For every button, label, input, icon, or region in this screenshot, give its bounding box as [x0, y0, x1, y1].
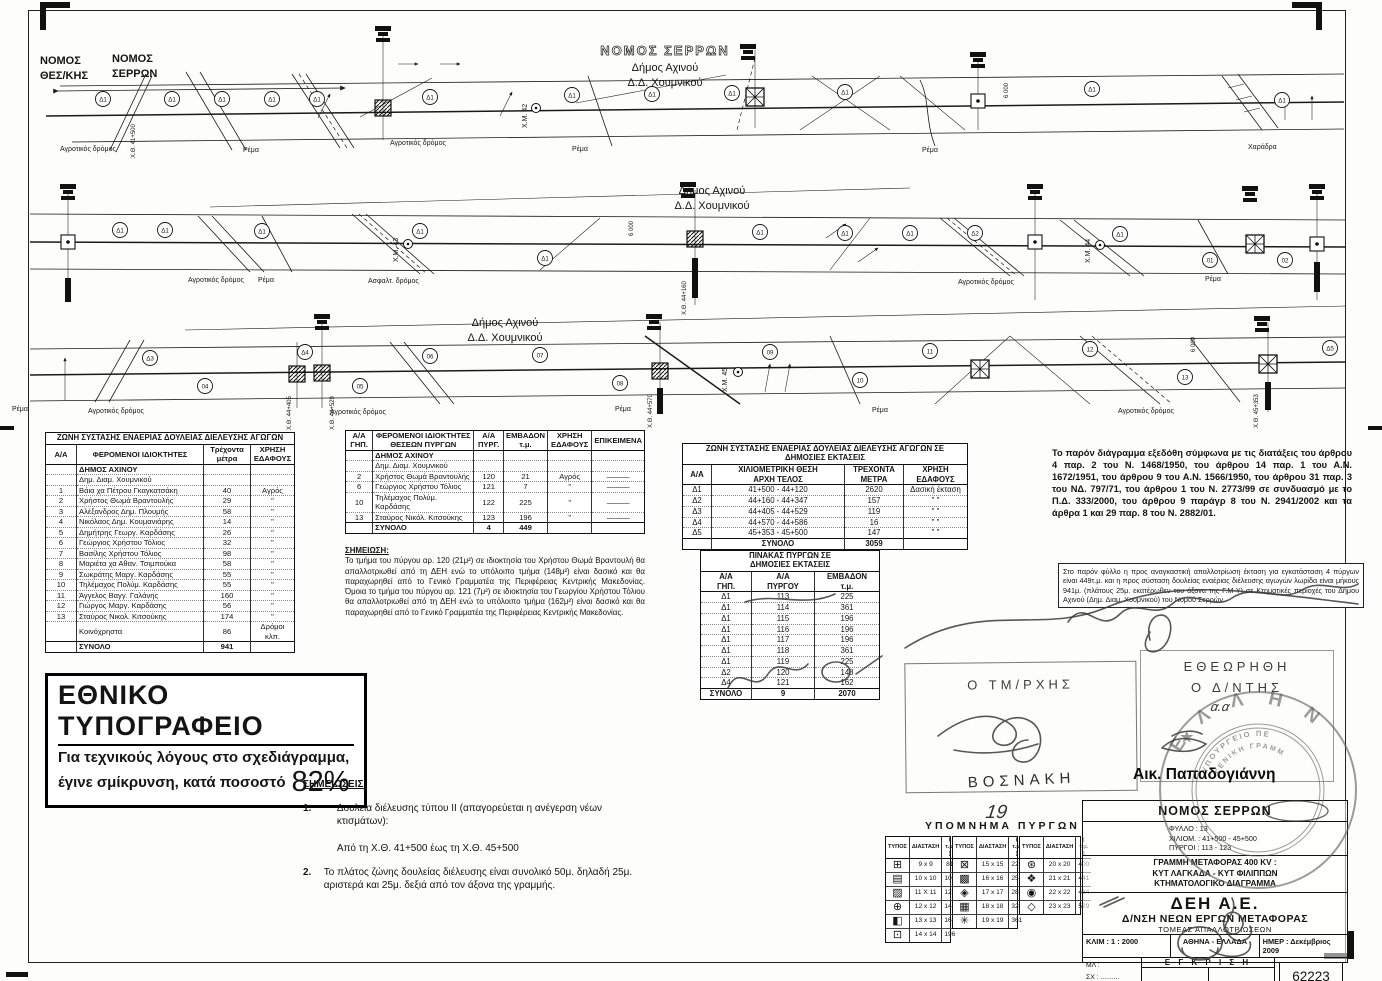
ground-label: Αγροτικός δρόμος: [1118, 407, 1174, 415]
line-title: ΓΡΑΜΜΗ ΜΕΤΑΦΟΡΑΣ 400 KV :: [1083, 858, 1347, 869]
table-cell: Δ1: [683, 485, 712, 496]
parcel-circle: Δ1: [1275, 93, 1290, 108]
table-cell: ": [251, 517, 295, 527]
table-cell: 225: [815, 592, 880, 603]
table-cell: 3059: [845, 539, 904, 549]
municipality-label: Δήμος Αχινού: [472, 317, 539, 329]
svg-text:Δ1: Δ1: [268, 96, 276, 103]
legend-group-2: ΤΥΠΟΣ ΔΙΑΣΤΑΣΗ ( τ.μ. ) ⊠15 x 15225▩16 x…: [952, 836, 1018, 929]
svg-text:Δ1: Δ1: [116, 227, 124, 234]
svg-text:Δ1: Δ1: [426, 94, 434, 101]
section-chief-name: ΒΟΣΝΑΚΗ: [906, 767, 1137, 794]
prefecture-title: ΝΟΜΟΣ ΣΕΡΡΩΝ: [1083, 801, 1347, 822]
table-cell: ———: [592, 482, 644, 492]
expropriation-summary-box: Στο παρόν φύλλο η προς αναγκαστική απαλλ…: [1058, 563, 1364, 608]
span-label: 6 000: [1004, 82, 1010, 98]
table-row: ◈17 x 17289: [953, 886, 1024, 900]
table-cell: ": [251, 601, 295, 611]
column-header: ΤΥΠΟΣ: [953, 837, 976, 858]
table-row: 13Σταύρος Νικολ. Κιτσούκης174": [46, 611, 294, 621]
table-cell: 196: [942, 928, 958, 942]
table-cell: [592, 523, 644, 533]
table-cell: 4: [46, 517, 77, 527]
parcel-circle: Δ5: [1323, 341, 1338, 356]
note-number: 2.: [303, 866, 324, 893]
chainage-label: Χ.Θ. 44+160: [682, 280, 688, 315]
ground-label: Αγροτικός δρόμος: [958, 278, 1014, 286]
table-cell: ΣΥΝΟΛΟ: [712, 539, 845, 549]
table-row: Δ244+160 - 44+347157" ": [683, 496, 967, 507]
tower-symbol: [314, 365, 330, 381]
column-header: ΧΡΗΣΗ ΕΔΑΦΟΥΣ: [251, 445, 295, 464]
parcel-circle: Δ3: [143, 351, 158, 366]
parcel-circle: 01: [1203, 253, 1218, 268]
parcel-circle: 09: [763, 345, 778, 360]
parcel-circle: Δ1: [413, 224, 428, 239]
table-cell: ———: [592, 512, 644, 522]
svg-text:Δ1: Δ1: [218, 96, 226, 103]
table-title: ΖΩΝΗ ΣΥΣΤΑΣΗΣ ΕΝΑΕΡΙΑΣ ΔΟΥΛΕΙΑΣ ΔΙΕΛΕΥΣΗ…: [683, 444, 967, 465]
table-cell: 361: [815, 603, 880, 614]
table-cell: 2: [346, 471, 373, 481]
table-cell: 120: [474, 471, 504, 481]
table-cell: [46, 475, 77, 485]
ml-field: ΜΛ :: [1086, 960, 1138, 972]
column-header: ΦΕΡΟΜΕΝΟΙ ΙΔΙΟΚΤΗΤΕΣ: [77, 445, 204, 464]
ground-label: Ρέμα: [872, 406, 888, 414]
table-row: Δημ. Διαμ. Χουμνικού: [46, 475, 294, 485]
column-header: ΤΥΠΟΣ: [886, 837, 909, 858]
table-cell: [504, 450, 548, 460]
table-cell: ΣΥΝΟΛΟ: [701, 688, 752, 698]
note-text: Από τη Χ.Θ. 41+500 έως τη Χ.Θ. 45+500: [337, 843, 519, 854]
table-row: ▨11 X 11121: [886, 886, 957, 900]
table-cell: 22 x 22: [1043, 886, 1075, 900]
table-cell: 15 x 15: [976, 858, 1008, 872]
table-cell: 56: [204, 601, 251, 611]
table-cell: ": [251, 506, 295, 516]
table-cell: ⊕: [886, 900, 909, 914]
parcel-circle: 10: [853, 373, 868, 388]
table-title: ΠΙΝΑΚΑΣ ΠΥΡΓΩΝ ΣΕ ΔΗΜΟΣΙΕΣ ΕΚΤΑΣΕΙΣ: [701, 551, 879, 572]
note-text: Δουλεία διέλευσης τύπου ΙΙ (απαγορεύεται…: [337, 803, 602, 828]
table-row: 12Γιώργος Μαργ. Καρδάσης56": [46, 601, 294, 611]
tower-range: ΠΥΡΓΟΙ : 113 - 123: [1169, 843, 1347, 853]
table-cell: 157: [845, 496, 904, 507]
parcel-circle: Δ1: [645, 87, 660, 102]
table-cell: 13: [346, 512, 373, 522]
span-label: 6 000: [629, 220, 635, 236]
table-cell: ": [251, 538, 295, 548]
table-cell: [251, 642, 295, 652]
table-row: ◉22 x 22484: [1020, 886, 1091, 900]
table-cell: Δημ. Διαμ. Χουμνικού: [77, 475, 204, 485]
table-cell: 58: [204, 559, 251, 569]
parcel-circle: Δ1: [215, 92, 230, 107]
table-cell: Δ1: [701, 635, 752, 646]
svg-text:Δ1: Δ1: [906, 230, 914, 237]
ground-label: Ρέμα: [1205, 275, 1221, 283]
table-cell: ": [251, 580, 295, 590]
meta-row: ΚΛΙΜ : 1 : 2000 ΑΘΗΝΑ - ΕΛΛΑΔΑ ΗΜΕΡ : Δε…: [1083, 935, 1347, 958]
table-cell: Δ1: [701, 656, 752, 667]
table-row: Δ141+500 - 44+1202620Δασική έκταση: [683, 485, 967, 496]
km-marker: [734, 368, 743, 377]
column-header: Α/Α ΠΥΡΓ.: [474, 431, 504, 450]
station-mark: [375, 26, 391, 42]
table-cell: Δ1: [701, 613, 752, 624]
table-row: Κοινόχρηστα86Δρόμοι κλπ.: [46, 622, 294, 642]
table-cell: " ": [904, 506, 968, 517]
table-cell: 174: [204, 611, 251, 621]
table-cell: 121: [474, 482, 504, 492]
svg-text:Δ1: Δ1: [168, 96, 176, 103]
ground-label: Αγροτικός δρόμος: [330, 408, 386, 416]
table-cell: 55: [204, 580, 251, 590]
parcel-circle: Δ4: [298, 345, 313, 360]
table-row: ◇23 x 23529: [1020, 900, 1091, 914]
table-row: 1Βάια χα Πέτρου Γκαγκατσάκη40Αγρός: [46, 485, 294, 495]
table-cell: Σωκράτης Μαργ. Καρδάσης: [77, 569, 204, 579]
table-row: ΔΗΜΟΣ ΑΧΙΝΟΥ: [46, 464, 294, 474]
parcel-circle: Δ1: [753, 225, 768, 240]
parcel-circle: Δ1: [423, 90, 438, 105]
table-cell: ◇: [1020, 900, 1043, 914]
table-cell: [548, 450, 592, 460]
table-cell: ⊛: [1020, 858, 1043, 872]
km-label: Χ.Μ. 45: [722, 368, 729, 392]
svg-text:06: 06: [427, 353, 434, 360]
table-row: Δ545+353 - 45+500147" ": [683, 528, 967, 539]
parcel-circle: Δ1: [565, 88, 580, 103]
table-cell: 196: [815, 635, 880, 646]
table-row: ✳19 x 19361: [953, 914, 1024, 928]
column-header: ΧΙΛΙΟΜΕΤΡΙΚΗ ΘΕΣΗ ΑΡΧΗ ΤΕΛΟΣ: [712, 465, 845, 485]
table-cell: 114: [752, 603, 815, 614]
table-cell: ✳: [953, 914, 976, 928]
table-row: Δ1113225: [701, 592, 879, 603]
chainage-label: Χ.Θ. 45+353: [1254, 393, 1260, 428]
nomos-right-label: ΣΕΡΡΩΝ: [112, 68, 157, 80]
table-row: ΣΥΝΟΛΟ4449: [346, 523, 644, 533]
table-cell: ⊠: [953, 858, 976, 872]
svg-text:Δ1: Δ1: [728, 90, 736, 97]
table-cell: ΣΥΝΟΛΟ: [373, 523, 474, 533]
table-cell: Δ1: [701, 646, 752, 657]
company-name: ΔΕΗ Α.Ε.: [1083, 893, 1347, 913]
tower-symbol: [652, 363, 668, 379]
parcel-circle: Δ1: [113, 223, 128, 238]
table-cell: Αγρός: [548, 471, 592, 481]
column-header: ΤΥΠΟΣ: [1020, 837, 1043, 858]
table-cell: [548, 461, 592, 471]
table-row: 2Χρήστος Θωμά Βραντουλής12021Αγρός———: [346, 471, 644, 481]
station-mark: [1309, 184, 1325, 200]
svg-text:Δ1: Δ1: [161, 227, 169, 234]
ground-label: Ρέμα: [12, 405, 28, 413]
table-cell: ": [251, 590, 295, 600]
table-header-row: ΤΥΠΟΣ ΔΙΑΣΤΑΣΗ ( τ.μ. ): [1020, 837, 1091, 858]
table-cell: ΔΗΜΟΣ ΑΧΙΝΟΥ: [373, 450, 474, 460]
svg-text:Δ1: Δ1: [1116, 231, 1124, 238]
table-cell: [346, 450, 373, 460]
table-cell: Δ1: [701, 592, 752, 603]
table-cell: 19 x 19: [976, 914, 1008, 928]
table-row: ⊕12 x 12144: [886, 900, 957, 914]
table-cell: Δ4: [683, 517, 712, 528]
svg-text:Δ1: Δ1: [756, 229, 764, 236]
table-cell: 196: [815, 624, 880, 635]
ground-label: Αγροτικός δρόμος: [88, 407, 144, 415]
table-cell: Δ1: [701, 624, 752, 635]
table-cell: 196: [504, 512, 548, 522]
reduction-note-line: έγινε σμίκρυνση, κατά ποσοστό: [58, 774, 286, 791]
tower-symbol: [971, 94, 985, 108]
table-row: ΔΗΜΟΣ ΑΧΙΝΟΥ: [346, 450, 644, 460]
strip-3: Δήμος Αχινού Δ.Δ. Χουμνικού Χ.Θ. 44+405 …: [12, 306, 1346, 430]
table-cell: 225: [815, 656, 880, 667]
table-cell: ◈: [953, 886, 976, 900]
table-cell: ": [548, 482, 592, 492]
table-row: ⊡14 x 14196: [886, 928, 957, 942]
table-cell: Άγγελος Βαγγ. Γαλάνης: [77, 590, 204, 600]
table-cell: Δ2: [683, 496, 712, 507]
tower-symbol: [971, 360, 989, 378]
svg-text:05: 05: [357, 383, 364, 390]
svg-text:10: 10: [857, 377, 864, 384]
acting-abbreviation: α.α: [1209, 699, 1334, 714]
table-cell: 58: [204, 506, 251, 516]
table-row: ΣΥΝΟΛΟ92070: [701, 688, 879, 698]
table-row: 8Μαριέτα χα Αθαν. Τσιμπούκα58": [46, 559, 294, 569]
chainage-label: Χ.Θ. 41+500: [131, 123, 137, 158]
parcel-circle: 13: [1178, 370, 1193, 385]
column-header: Α/Α ΠΥΡΓΟΥ: [752, 572, 815, 592]
parcel-circle: 02: [1278, 253, 1293, 268]
table-cell: [346, 461, 373, 471]
parcel-circle: Δ1: [838, 226, 853, 241]
director-name: Αικ. Παπαδογιάννη: [1133, 766, 1275, 784]
legend-group-1: ΤΥΠΟΣ ΔΙΑΣΤΑΣΗ ( τ.μ. ) ⊞9 x 981▤10 x 10…: [885, 836, 951, 943]
ground-label: Αγροτικός δρόμος: [390, 139, 446, 147]
svg-text:Δ5: Δ5: [1326, 345, 1334, 352]
column-header: ΧΡΗΣΗ ΕΔΑΦΟΥΣ: [904, 465, 968, 485]
scale-value: ΚΛΙΜ : 1 : 2000: [1083, 935, 1170, 957]
ground-label: Ρέμα: [922, 146, 938, 154]
table-cell: 115: [752, 613, 815, 624]
table-cell: 1: [46, 485, 77, 495]
table-row: ▦18 x 18324: [953, 900, 1024, 914]
svg-text:11: 11: [927, 348, 934, 355]
svg-text:13: 13: [1182, 374, 1189, 381]
table-cell: ΣΥΝΟΛΟ: [77, 642, 204, 652]
table-row: ΣΥΝΟΛΟ941: [46, 642, 294, 652]
ground-label: Ασφαλτ. δρόμος: [368, 277, 419, 285]
table-cell: 10 x 10: [909, 872, 941, 886]
approval-cell: [1208, 968, 1275, 981]
table-cell: Νικόλαος Δημ. Κουμανιάρης: [77, 517, 204, 527]
parcel-circle: 06: [423, 349, 438, 364]
svg-text:Δ2: Δ2: [971, 230, 979, 237]
table-cell: Χρήστος Θωμά Βραντουλής: [77, 496, 204, 506]
svg-text:Δ1: Δ1: [1088, 86, 1096, 93]
svg-text:Δ1: Δ1: [648, 91, 656, 98]
svg-text:Δ1: Δ1: [841, 230, 849, 237]
table-row: Δ2120148: [701, 667, 879, 678]
table-cell: ◧: [886, 914, 909, 928]
column-header: ΔΙΑΣΤΑΣΗ: [976, 837, 1008, 858]
table-row: ❖21 x 21441: [1020, 872, 1091, 886]
note-number: 1.: [303, 802, 337, 856]
table-cell: 5: [46, 527, 77, 537]
table-cell: 16: [845, 517, 904, 528]
nomos-left-label: ΘΕΣ/ΚΗΣ: [40, 70, 88, 82]
km-marker: [404, 240, 413, 249]
chainage-range: ΧΙΛΙΟΜ. : 41+500 - 45+500: [1169, 834, 1347, 844]
date-value: ΗΜΕΡ : Δεκέμβριος 2009: [1259, 935, 1347, 957]
tower-symbol: [1246, 235, 1264, 253]
svg-text:04: 04: [202, 383, 209, 390]
tower-symbol: [1310, 237, 1324, 251]
ground-label: Αγροτικός δρόμος: [60, 145, 116, 153]
ground-label: Αγροτικός δρόμος: [188, 276, 244, 284]
svg-text:12: 12: [1087, 346, 1094, 353]
table-cell: 2: [46, 496, 77, 506]
table-cell: [592, 461, 644, 471]
tower-symbol: [61, 235, 75, 249]
column-header: ΕΠΙΚΕΙΜΕΝΑ: [592, 431, 644, 450]
table-header-row: Α/Α ΦΕΡΟΜΕΝΟΙ ΙΔΙΟΚΤΗΤΕΣ Τρέχοντα μέτρα …: [46, 445, 294, 464]
station-mark: [740, 44, 756, 60]
table-row: Δημ. Διαμ. Χουμνικού: [346, 461, 644, 471]
table-row: Δ444+570 - 44+58616" ": [683, 517, 967, 528]
parcel-circle: 05: [353, 379, 368, 394]
table-cell: [548, 523, 592, 533]
drawing-number: 62223: [1279, 962, 1343, 981]
svg-text:07: 07: [537, 352, 544, 359]
parcel-circle: Δ1: [1085, 82, 1100, 97]
note-body: Το τμήμα του πύργου αρ. 120 (21μ²) σε ιδ…: [345, 556, 645, 616]
table-cell: ": [251, 496, 295, 506]
table-cell: Δ3: [683, 506, 712, 517]
table-cell: ———: [592, 471, 644, 481]
parcel-circle: Δ1: [255, 224, 270, 239]
svg-text:02: 02: [1282, 257, 1289, 264]
table-cell: ▦: [953, 900, 976, 914]
table-cell: 119: [752, 656, 815, 667]
table-row: Δ344+405 - 44+529119" ": [683, 506, 967, 517]
table-row: 3Αλέξανδρος Δημ. Πλουμής58": [46, 506, 294, 516]
table-cell: 41+500 - 44+120: [712, 485, 845, 496]
table-row: ⊠15 x 15225: [953, 858, 1024, 872]
table-cell: [474, 461, 504, 471]
table-cell: 14: [204, 517, 251, 527]
table-cell: Τηλέμαχος Πολύμ. Καρδάσης: [77, 580, 204, 590]
table-cell: 196: [815, 613, 880, 624]
table-row: Δ1114361: [701, 603, 879, 614]
parcel-circle: 12: [1083, 342, 1098, 357]
nomos-serron-title: ΝΟΜΟΣ ΣΕΡΡΩΝ: [600, 43, 729, 58]
strip-1: ΝΟΜΟΣ ΘΕΣ/ΚΗΣ ΝΟΜΟΣ ΣΕΡΡΩΝ ΝΟΜΟΣ ΣΕΡΡΩΝ …: [40, 26, 1344, 158]
station-mark: [970, 52, 986, 68]
table-row: ⊛20 x 20400: [1020, 858, 1091, 872]
table-cell: 116: [752, 624, 815, 635]
table-row: 2Χρήστος Θωμά Βραντουλής29": [46, 496, 294, 506]
drawing-type: ΚΤΗΜΑΤΟΛΟΓΙΚΟ ΔΙΑΓΡΑΜΜΑ: [1083, 879, 1347, 890]
column-header: ΤΡΕΧΟΝΤΑ ΜΕΤΡΑ: [845, 465, 904, 485]
table-cell: 86: [204, 622, 251, 642]
table-cell: 55: [204, 569, 251, 579]
table-row: ΣΥΝΟΛΟ3059: [683, 539, 967, 549]
ground-label: Ρέμα: [258, 276, 274, 284]
table-zone-public: ΖΩΝΗ ΣΥΣΤΑΣΗΣ ΕΝΑΕΡΙΑΣ ΔΟΥΛΕΙΑΣ ΔΙΕΛΕΥΣΗ…: [682, 443, 968, 550]
table-cell: 20 x 20: [1043, 858, 1075, 872]
district-label: Δ.Δ. Χουμνικού: [627, 77, 702, 89]
table-cell: Αλέξανδρος Δημ. Πλουμής: [77, 506, 204, 516]
table-cell: 18 x 18: [976, 900, 1008, 914]
table-row: Δ1115196: [701, 613, 879, 624]
svg-text:Δ1: Δ1: [841, 89, 849, 96]
table-cell: Χρήστος Θωμά Βραντουλής: [373, 471, 474, 481]
table-cell: Βάια χα Πέτρου Γκαγκατσάκη: [77, 485, 204, 495]
table-cell: 9: [752, 688, 815, 698]
table-row: 6Γεώργιος Χρήστου Τόλιος32": [46, 538, 294, 548]
table-cell: ": [251, 569, 295, 579]
table-cell: ◉: [1020, 886, 1043, 900]
reviewed-stamp-text: ΕΘΕΩΡΗΘΗ: [1141, 659, 1333, 674]
parcel-circle: 11: [923, 344, 938, 359]
table-cell: [592, 450, 644, 460]
table-cell: [251, 475, 295, 485]
parcel-circle: Δ1: [265, 92, 280, 107]
district-label: Δ.Δ. Χουμνικού: [674, 200, 749, 212]
parcel-circle: 08: [613, 376, 628, 391]
parcel-circle: Δ1: [165, 92, 180, 107]
signature-box-section-chief: Ο ΤΜ/ΡΧΗΣ ΒΟΣΝΑΚΗ: [904, 661, 1137, 793]
table-cell: ▤: [886, 872, 909, 886]
table-cell: 13 x 13: [909, 914, 941, 928]
table-cell: 123: [474, 512, 504, 522]
table-cell: 10: [46, 580, 77, 590]
company-block: ΔΕΗ Α.Ε. Δ/ΝΣΗ ΝΕΩΝ ΕΡΓΩΝ ΜΕΤΑΦΟΡΑΣ ΤΟΜΕ…: [1083, 893, 1347, 935]
table-cell: 40: [204, 485, 251, 495]
table-cell: Δημήτρης Γεωργ. Καρδάσης: [77, 527, 204, 537]
table-cell: 449: [504, 523, 548, 533]
table-cell: Δ2: [701, 667, 752, 678]
table-cell: ⊞: [886, 858, 909, 872]
column-header: Τρέχοντα μέτρα: [204, 445, 251, 464]
table-cell: Δ4: [701, 678, 752, 689]
tower-symbol: [687, 231, 703, 247]
table-cell: 16 x 16: [976, 872, 1008, 886]
table-cell: 118: [752, 646, 815, 657]
svg-text:Δ1: Δ1: [313, 96, 321, 103]
parcel-circle: Δ1: [903, 226, 918, 241]
parcel-circle: Δ2: [968, 226, 983, 241]
table-cell: 147: [845, 528, 904, 539]
table-row: 4Νικόλαος Δημ. Κουμανιάρης14": [46, 517, 294, 527]
table-cell: 162: [815, 678, 880, 689]
svg-text:09: 09: [767, 349, 774, 356]
table-cell: Αγρός: [251, 485, 295, 495]
district-label: Δ.Δ. Χουμνικού: [467, 332, 542, 344]
table-towers-public: ΠΙΝΑΚΑΣ ΠΥΡΓΩΝ ΣΕ ΔΗΜΟΣΙΕΣ ΕΚΤΑΣΕΙΣ Α/Α …: [700, 550, 880, 700]
parcel-circle: Δ1: [1113, 227, 1128, 242]
svg-text:08: 08: [617, 380, 624, 387]
ground-label: Ρέμα: [572, 145, 588, 153]
svg-text:Δ1: Δ1: [1278, 97, 1286, 104]
station-mark: [1027, 184, 1043, 200]
